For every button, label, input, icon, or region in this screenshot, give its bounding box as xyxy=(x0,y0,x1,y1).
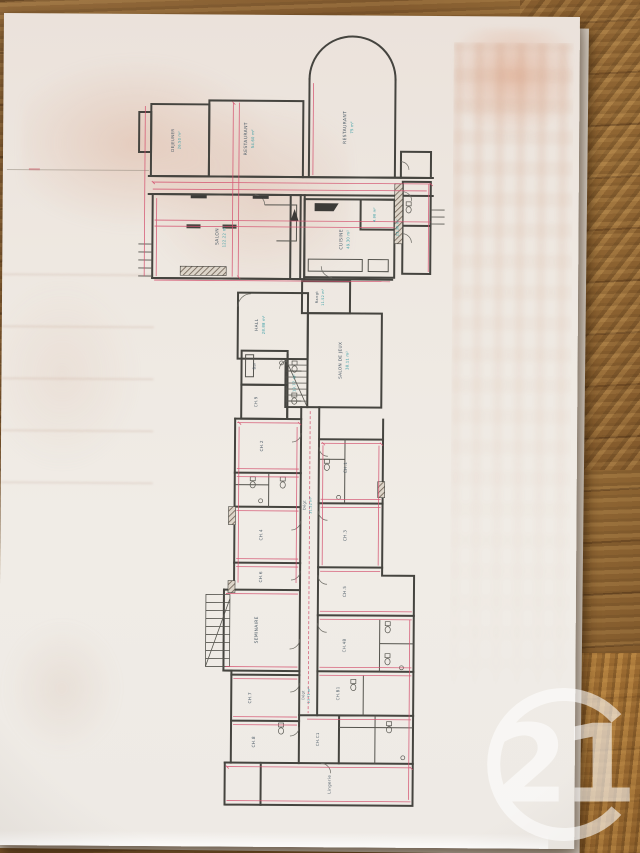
room-area-hall: 28.88 m² xyxy=(261,315,266,334)
room-label-degagement-couloir: Dégt xyxy=(303,500,307,510)
room-area-rangement: 11.52 m² xyxy=(321,288,325,306)
room-label-ch9: CH.9 xyxy=(253,396,258,407)
room-label-seminaire: SEMINAIRE xyxy=(254,616,260,643)
room-label-hall: HALL xyxy=(254,318,259,330)
room-label-chc1: CH.C1 xyxy=(315,732,320,746)
dimension-lines xyxy=(141,82,434,802)
room-area-office-corridor: 23.36 m² xyxy=(395,219,399,237)
photo-scene: DEJEUNER 26.50 m² RESTAURANT 54.60 m² RE… xyxy=(0,0,640,853)
room-label-lingerie: Lingerie xyxy=(327,775,332,794)
room-label-dejeuner: DEJEUNER xyxy=(170,128,175,151)
room-label-ch2: CH.2 xyxy=(259,440,264,451)
room-label-ch7: CH.7 xyxy=(247,692,252,703)
room-area-restaurant1: 54.60 m² xyxy=(250,129,255,148)
century21-number: 21 xyxy=(493,703,631,828)
room-label-ch6: CH.6 xyxy=(258,571,263,582)
room-area-dejeuner: 26.50 m² xyxy=(178,131,182,149)
room-area-salon: 122.22 m² xyxy=(221,225,226,247)
room-area-restaurant2: 75 m² xyxy=(349,121,354,134)
room-label-chb1: CH.B1 xyxy=(335,686,340,700)
outer-walls xyxy=(134,35,433,806)
room-label-ch4: CH.4 xyxy=(258,529,263,540)
century21-watermark: 21 xyxy=(452,652,640,853)
room-label-cuisine: CUISINE xyxy=(338,229,344,250)
room-label-restaurant2: RESTAURANT xyxy=(342,111,348,144)
room-area-salon-de-jeux: 38.11 m² xyxy=(345,351,350,370)
room-label-restaurant1: RESTAURANT xyxy=(243,122,249,155)
room-area-office-small: 4.98 m² xyxy=(373,207,377,222)
room-label-rangement: Rangt xyxy=(315,291,319,304)
room-labels: DEJEUNER 26.50 m² RESTAURANT 54.60 m² RE… xyxy=(166,110,401,795)
door-arcs xyxy=(235,161,412,774)
room-label-ch4b: CH.4B xyxy=(342,638,347,652)
room-area-cuisine: 49.30 m² xyxy=(345,230,350,249)
room-label-bar: Bar xyxy=(252,362,257,370)
room-area-degagement-couloir: 31.52 m² xyxy=(309,496,313,514)
room-area-degagement-bas: 13.71 m² xyxy=(307,687,311,704)
room-label-salon-de-jeux: SALON DE JEUX xyxy=(337,342,342,379)
room-label-salon: SALON xyxy=(214,228,220,245)
room-area-degagement-escalier: 19.77 m² xyxy=(292,374,296,392)
room-label-ch5: CH.5 xyxy=(342,586,347,597)
room-label-degagement-bas: Dégt xyxy=(301,690,305,700)
room-label-ch1: CH.1 xyxy=(343,462,348,473)
room-label-ch8: CH.8 xyxy=(251,736,256,747)
room-label-ch3: CH.3 xyxy=(342,530,347,541)
